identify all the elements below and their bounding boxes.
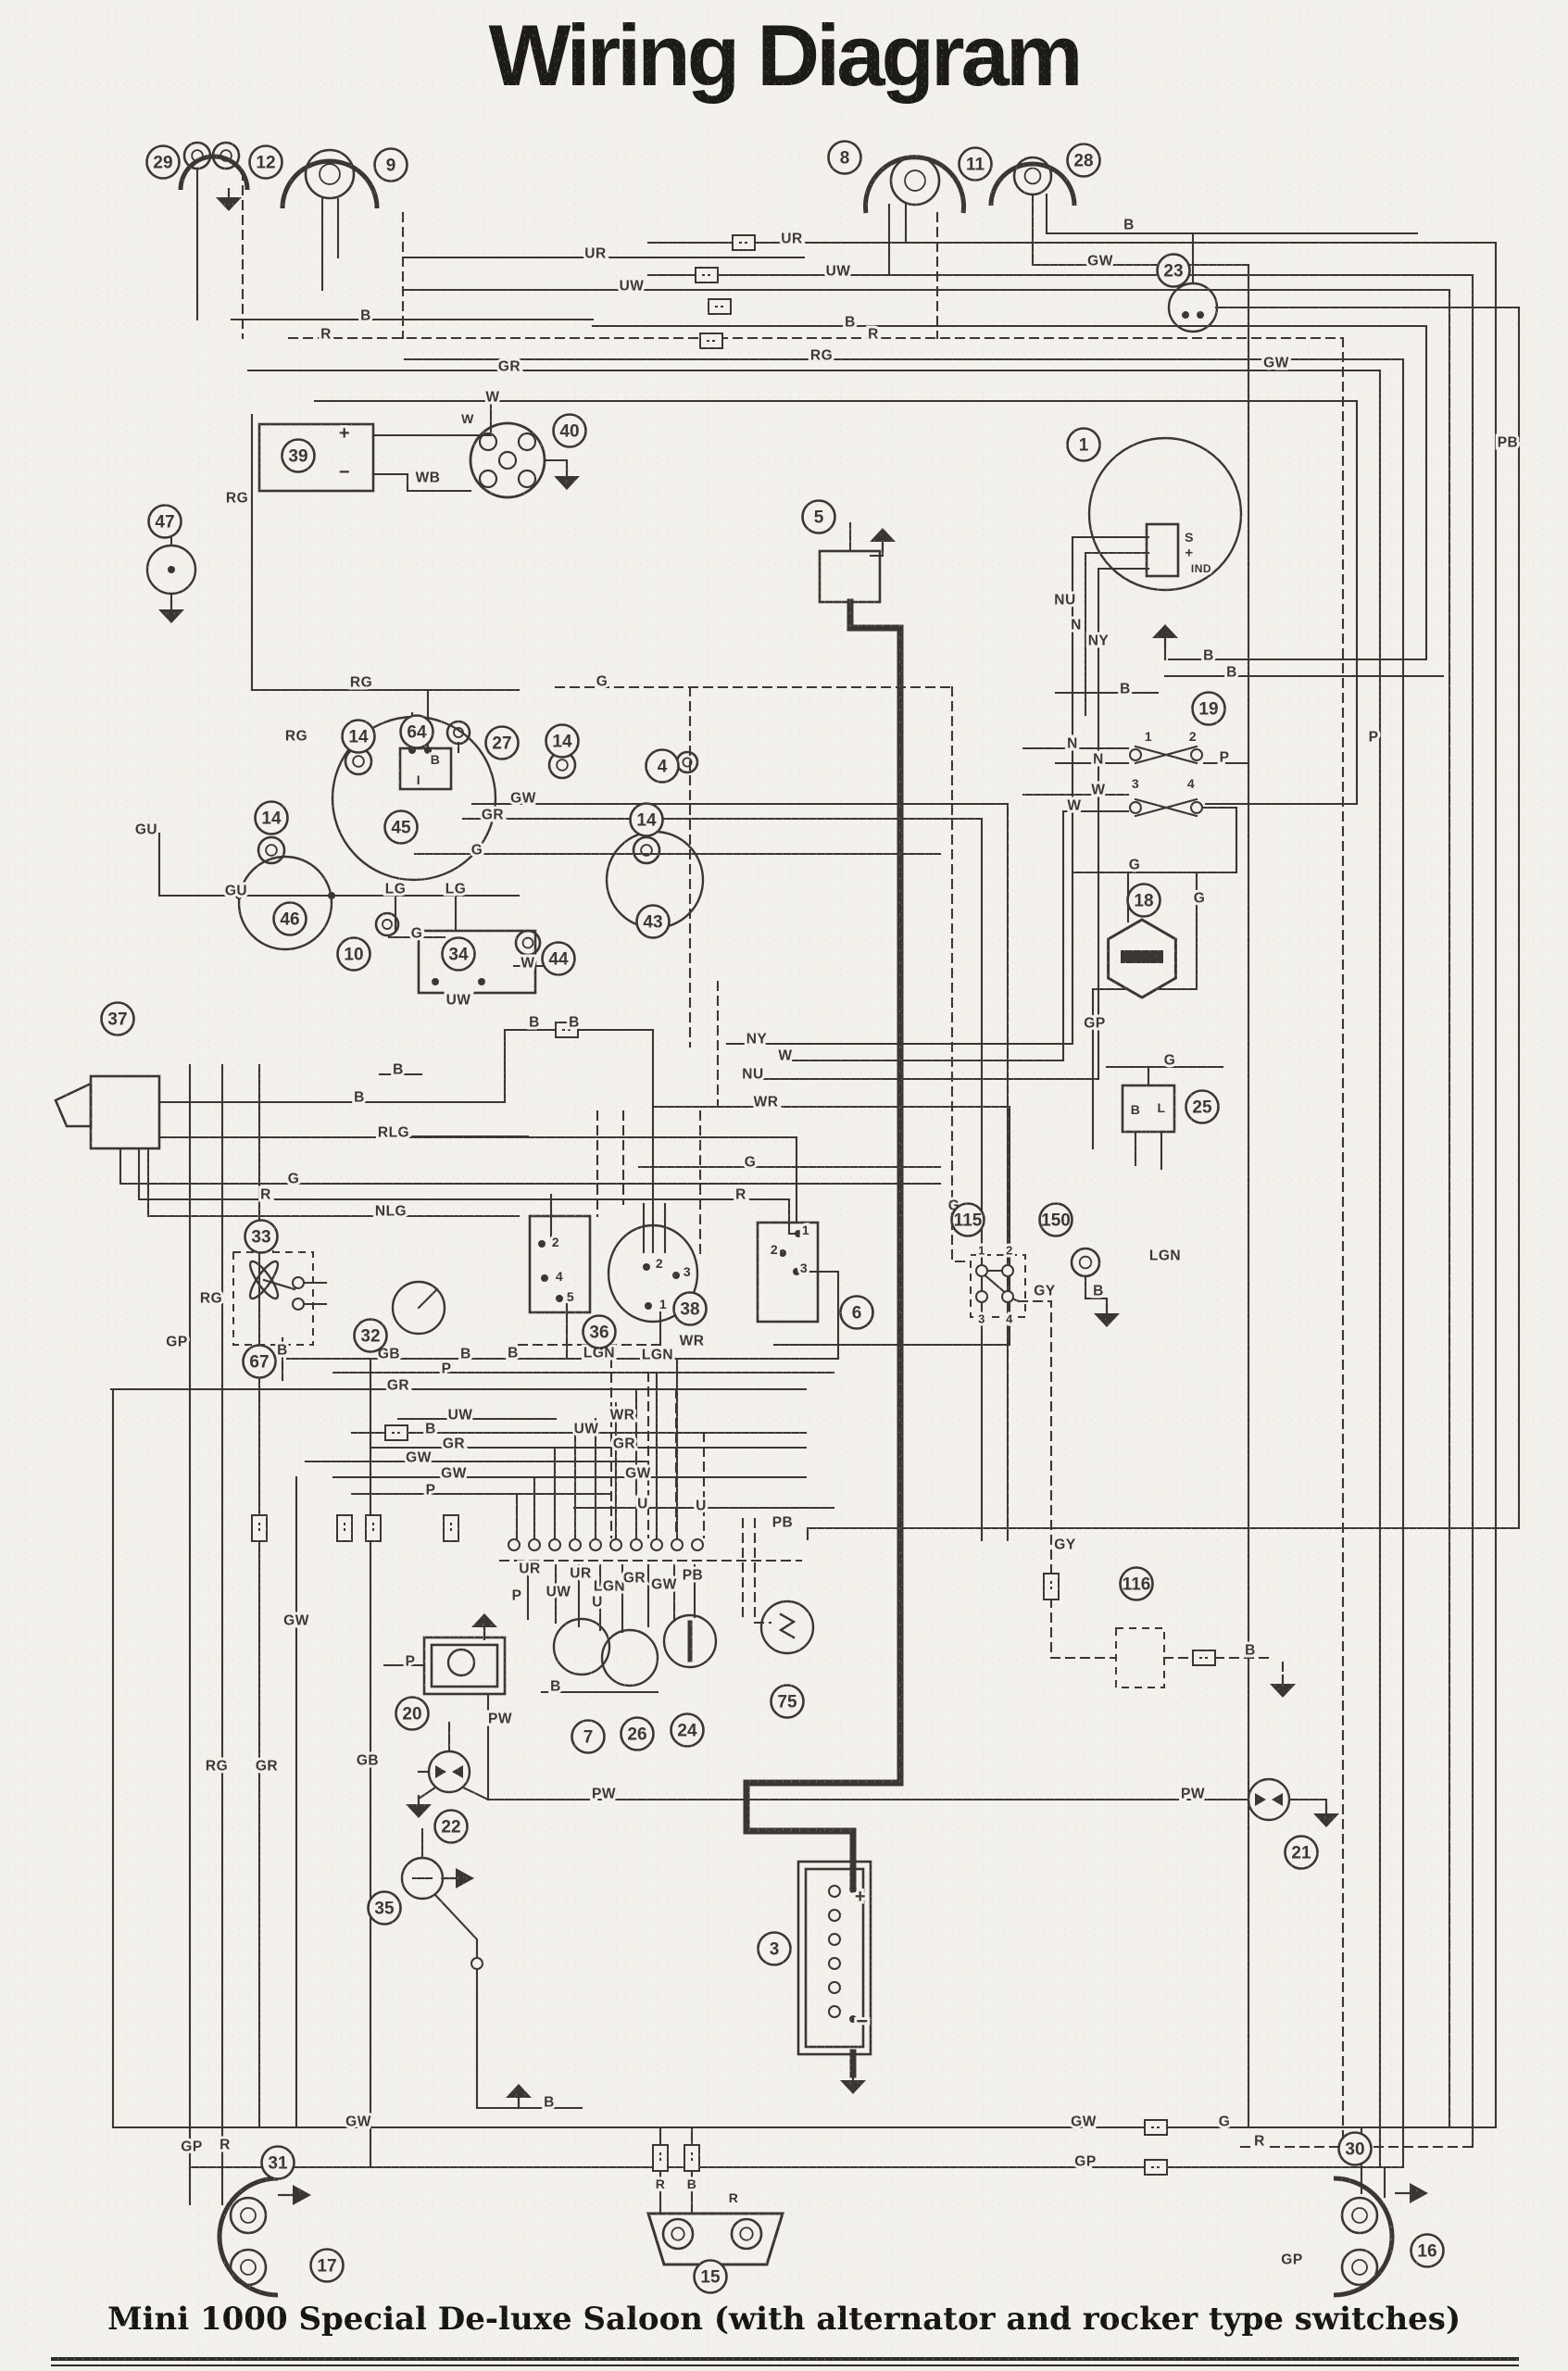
- terminal: [570, 1539, 581, 1550]
- wire-label: W: [1067, 798, 1081, 814]
- wire-label: P: [1369, 730, 1379, 746]
- connector: [700, 333, 722, 348]
- wire: [1085, 1298, 1107, 1308]
- terminal: [631, 1539, 642, 1550]
- wire: [1289, 1800, 1326, 1808]
- wire-label: R: [220, 2138, 231, 2153]
- wire-label: +: [339, 423, 350, 444]
- callout-number-34: 34: [448, 946, 469, 965]
- terminal-dot: [432, 978, 439, 985]
- bulb: [732, 2219, 761, 2249]
- wire-label: G: [745, 1155, 757, 1171]
- wire-label: B: [1203, 648, 1214, 664]
- arrow-icon: [456, 1868, 474, 1888]
- component-box: [91, 1076, 159, 1148]
- callout-number-28: 28: [1073, 152, 1093, 171]
- bulb-filament: [241, 2208, 256, 2223]
- wire: [148, 1148, 519, 1216]
- bulb: [663, 2219, 693, 2249]
- terminal-dot: [672, 1272, 680, 1279]
- bulb-filament: [1080, 1257, 1092, 1269]
- wire-label: N: [1067, 736, 1078, 752]
- terminal: [293, 1277, 304, 1288]
- wire-label: LG: [385, 882, 407, 897]
- callout-number-40: 40: [559, 422, 579, 442]
- terminal-dot: [478, 978, 485, 985]
- bulb: [891, 157, 939, 205]
- bulb-filament: [557, 759, 568, 771]
- terminal-dot: [541, 1274, 548, 1282]
- callout-number-24: 24: [677, 1722, 697, 1741]
- terminal: [471, 1958, 483, 1969]
- wire-label: B: [687, 2177, 697, 2191]
- bulb: [1342, 2198, 1377, 2233]
- bulb-filament: [241, 2260, 256, 2275]
- bottom-border-line: [51, 2365, 1519, 2366]
- callout-number-67: 67: [249, 1353, 269, 1373]
- wire-label: NU: [1054, 593, 1075, 608]
- component-box: [820, 551, 880, 602]
- wire-label: B: [529, 1015, 540, 1031]
- wire-label: S: [1185, 530, 1194, 545]
- wire-label: R: [1254, 2134, 1265, 2150]
- terminal-dot: [1197, 311, 1204, 319]
- component-box: [259, 424, 373, 491]
- callout-number-44: 44: [548, 950, 569, 970]
- wire-label: P: [426, 1483, 436, 1499]
- wire-label: RG: [810, 348, 833, 364]
- terminal: [976, 1265, 987, 1276]
- wire-label: GW: [283, 1613, 309, 1629]
- wire-label: UW: [446, 993, 471, 1009]
- wire-label: B: [1120, 682, 1131, 697]
- wire-label: B: [431, 752, 441, 767]
- wire-label: +: [855, 1887, 866, 1907]
- wire-label: B: [569, 1015, 580, 1031]
- callout-number-75: 75: [777, 1693, 797, 1712]
- wire-label: RG: [206, 1759, 228, 1775]
- bulb: [447, 721, 470, 744]
- callout-number-3: 3: [770, 1940, 780, 1960]
- terminal: [549, 1539, 560, 1550]
- wire: [435, 1895, 582, 2108]
- wire-label: N: [1071, 618, 1082, 634]
- wire-label: L: [1157, 1100, 1165, 1115]
- callout-number-10: 10: [344, 946, 363, 965]
- component-body: [761, 1601, 813, 1653]
- wire-label: LGN: [642, 1348, 673, 1363]
- wire: [785, 811, 1128, 1060]
- wire: [419, 1289, 437, 1308]
- callout-number-14: 14: [348, 728, 369, 747]
- wire-label: 4: [1187, 776, 1195, 791]
- wire-label: UW: [620, 279, 645, 295]
- component-body: [429, 1751, 470, 1792]
- wire-label: −: [339, 462, 350, 483]
- bulb-filament: [671, 2227, 684, 2239]
- callout-number-22: 22: [441, 1818, 460, 1838]
- wire-label: B: [1226, 665, 1237, 681]
- wire-label: B: [393, 1062, 404, 1078]
- bulb: [677, 752, 697, 772]
- callout-number-38: 38: [680, 1300, 699, 1320]
- distributor-terminal: [480, 470, 496, 487]
- wire-label: 1: [659, 1297, 667, 1311]
- wiring-diagram-canvas: URURUWUWBBBRRGRRGWGWGWPBWBW+−S+INDNUNNYB…: [0, 0, 1568, 2371]
- wire-dashed: [952, 687, 971, 1261]
- wire-label: LGN: [1149, 1248, 1181, 1264]
- callout-number-116: 116: [1123, 1575, 1151, 1595]
- ground-icon: [840, 2080, 866, 2094]
- wire-label: UR: [570, 1566, 591, 1582]
- wire-label: R: [656, 2177, 666, 2191]
- wire-label: UW: [574, 1422, 599, 1437]
- callout-number-20: 20: [402, 1705, 421, 1725]
- wire-label: U: [696, 1499, 707, 1514]
- component-body: [554, 1619, 609, 1675]
- connector: [1145, 2160, 1167, 2175]
- wire-label: GW: [441, 1466, 467, 1482]
- ignition-switch-key: [56, 1084, 91, 1126]
- wire: [1047, 194, 1417, 233]
- terminal-dot: [168, 566, 175, 573]
- earth-icon: [471, 1613, 497, 1627]
- wire-label: I: [417, 772, 420, 787]
- bulb-filament: [266, 845, 277, 856]
- wire-label: WR: [680, 1334, 705, 1349]
- ground-icon: [1313, 1813, 1339, 1827]
- wire-label: G: [471, 843, 483, 859]
- callout-number-19: 19: [1198, 700, 1218, 720]
- wire-label: W: [1091, 783, 1105, 798]
- wire-label: B: [460, 1347, 471, 1362]
- callout-number-26: 26: [627, 1725, 646, 1745]
- callout-number-36: 36: [589, 1323, 608, 1343]
- wire-label: R: [320, 327, 332, 343]
- connector: [696, 268, 718, 282]
- callout-number-27: 27: [492, 734, 511, 754]
- earth-icon: [1152, 624, 1178, 638]
- terminal: [651, 1539, 662, 1550]
- wire-dashed: [1051, 1599, 1116, 1658]
- callout-number-16: 16: [1417, 2242, 1436, 2262]
- wire-label: GR: [443, 1436, 465, 1452]
- wire-label: GW: [1087, 254, 1113, 270]
- distributor-terminal: [519, 470, 535, 487]
- terminal: [590, 1539, 601, 1550]
- callout-number-14: 14: [261, 809, 282, 829]
- terminal-dot: [643, 1263, 650, 1271]
- wire-label: 2: [656, 1256, 663, 1271]
- bulb-filament: [1352, 2208, 1367, 2223]
- wire-label: B: [1123, 218, 1135, 233]
- wire-label: NU: [742, 1067, 763, 1083]
- wire-label: 1: [1145, 729, 1152, 744]
- spark-gap-icon: [781, 1614, 794, 1637]
- wire-label: GU: [135, 822, 157, 838]
- wire-label: GW: [1263, 356, 1289, 371]
- bulb: [1342, 2250, 1377, 2285]
- wire-label: R: [735, 1187, 746, 1203]
- wire-label: GW: [510, 791, 536, 807]
- terminal-dot: [779, 1249, 786, 1257]
- callout-number-33: 33: [251, 1228, 270, 1248]
- bulb: [306, 150, 354, 198]
- bulb-filament: [1025, 169, 1041, 184]
- callout-number-46: 46: [280, 910, 299, 930]
- wire-label: UW: [546, 1585, 571, 1600]
- wire-label: GB: [357, 1753, 379, 1769]
- component-body: [1248, 1779, 1289, 1820]
- wire-label: U: [637, 1497, 648, 1512]
- wire-label: P: [406, 1654, 416, 1670]
- wire-label: +: [1185, 546, 1193, 561]
- wire-label: B: [1093, 1284, 1104, 1299]
- wire-label: B: [360, 308, 371, 324]
- connector: [1145, 2120, 1167, 2135]
- wire-label: GW: [651, 1577, 677, 1593]
- bulb-filament: [740, 2227, 752, 2239]
- wire-label: GP: [1074, 2154, 1096, 2170]
- wire-label: 3: [1132, 776, 1139, 791]
- arrow-icon: [1410, 2183, 1428, 2203]
- component-box: [432, 1645, 497, 1687]
- wire-label: 4: [1006, 1312, 1013, 1326]
- wire-label: PW: [488, 1712, 512, 1727]
- terminal: [1002, 1265, 1013, 1276]
- wire-label: R: [729, 2190, 739, 2205]
- wire: [1033, 194, 1248, 265]
- wire-label: WB: [416, 470, 441, 486]
- ground-icon: [406, 1804, 432, 1818]
- wire-label: NY: [746, 1032, 768, 1048]
- component-box: [1147, 524, 1178, 576]
- callout-number-150: 150: [1041, 1211, 1071, 1231]
- wire-label: GR: [613, 1436, 635, 1452]
- wire-label: RG: [285, 729, 307, 745]
- wire-label: B: [354, 1090, 365, 1106]
- wire-label: GP: [1084, 1016, 1105, 1032]
- inward-arrow-icon: [452, 1765, 463, 1778]
- callout-number-37: 37: [107, 1010, 127, 1030]
- wire-label: B: [277, 1343, 288, 1359]
- wire-label: B: [544, 2095, 555, 2111]
- ground-icon: [554, 476, 580, 490]
- wire-label: U: [592, 1595, 603, 1611]
- wire-label: GW: [1071, 2114, 1097, 2130]
- wire-label: 3: [684, 1264, 691, 1279]
- callout-number-14: 14: [636, 811, 657, 831]
- bulb: [231, 2250, 266, 2285]
- wire-label: B: [550, 1679, 561, 1695]
- wire-label: GP: [181, 2139, 202, 2155]
- component-body: [448, 1650, 474, 1675]
- ground-icon: [1270, 1684, 1296, 1698]
- diagram-caption: Mini 1000 Special De-luxe Saloon (with a…: [0, 2301, 1568, 2338]
- terminal: [829, 1934, 840, 1945]
- terminal: [508, 1539, 520, 1550]
- callout-number-7: 7: [583, 1728, 594, 1748]
- wire-label: PB: [772, 1515, 794, 1531]
- bulb-filament: [523, 938, 533, 948]
- wire: [1206, 401, 1357, 804]
- wire-label: GR: [387, 1378, 409, 1394]
- callout-number-6: 6: [852, 1304, 862, 1323]
- wire-label: G: [1194, 891, 1206, 907]
- wire: [139, 1148, 789, 1199]
- connector: [709, 299, 731, 314]
- bottom-border-line: [51, 2357, 1519, 2361]
- wire-label: W: [521, 956, 534, 972]
- terminal: [829, 1982, 840, 1993]
- wire-label: GR: [482, 808, 504, 823]
- wire: [545, 460, 567, 470]
- callout-number-39: 39: [288, 447, 307, 467]
- bulb: [1072, 1248, 1099, 1276]
- wire-label: IND: [1191, 562, 1211, 575]
- terminal: [829, 1958, 840, 1969]
- ground-icon: [1094, 1313, 1120, 1327]
- callout-number-45: 45: [391, 819, 411, 838]
- wire-label: GW: [345, 2114, 371, 2130]
- bulb-filament: [353, 756, 364, 767]
- terminal: [692, 1539, 703, 1550]
- ground-icon: [216, 197, 242, 211]
- wire-label: G: [288, 1172, 300, 1187]
- wire: [159, 1030, 653, 1102]
- terminal-dot: [793, 1268, 800, 1275]
- ground-icon: [158, 609, 184, 623]
- callout-number-14: 14: [552, 733, 572, 752]
- wire-label: G: [1164, 1053, 1176, 1069]
- wire-label: GU: [225, 884, 247, 899]
- wire-dashed: [1019, 1301, 1051, 1574]
- inward-arrow-icon: [1272, 1793, 1283, 1806]
- callout-number-115: 115: [954, 1211, 983, 1231]
- wire: [419, 1788, 435, 1799]
- wire-label: GW: [625, 1466, 651, 1482]
- wire-label: PB: [683, 1568, 704, 1584]
- terminal: [976, 1291, 987, 1302]
- terminal: [293, 1298, 304, 1310]
- wire-label: 2: [1006, 1244, 1013, 1258]
- wire-label: UR: [781, 232, 802, 247]
- wire-label: RG: [350, 675, 372, 691]
- wire-label: GY: [1034, 1284, 1056, 1299]
- inward-arrow-icon: [435, 1765, 446, 1778]
- inward-arrow-icon: [1255, 1793, 1266, 1806]
- wire-label: G: [1129, 858, 1141, 873]
- bulb-filament: [905, 170, 925, 191]
- wire-label: NY: [1088, 634, 1110, 649]
- callout-number-1: 1: [1079, 436, 1089, 456]
- callout-number-15: 15: [700, 2268, 721, 2288]
- wire-label: GR: [256, 1759, 278, 1775]
- terminal-dot: [795, 1230, 802, 1237]
- callout-number-12: 12: [256, 154, 275, 173]
- wire-label: RG: [226, 491, 248, 507]
- wire-label: GW: [406, 1450, 432, 1466]
- wire-label: UW: [826, 264, 851, 280]
- component-box-dashed: [1116, 1628, 1164, 1687]
- wire-label: GR: [498, 359, 521, 375]
- wire-label: UR: [519, 1562, 540, 1577]
- wire-label: B: [845, 315, 856, 331]
- lamp-shell: [1334, 2178, 1392, 2295]
- wire-label: GP: [1281, 2252, 1302, 2268]
- wire-label: NLG: [375, 1204, 407, 1220]
- terminal: [1002, 1291, 1013, 1302]
- wire-label: 4: [556, 1269, 563, 1284]
- distributor-terminal: [499, 452, 516, 469]
- wire-label: WR: [610, 1408, 635, 1424]
- connector: [733, 235, 755, 250]
- wire-label: P: [442, 1361, 452, 1377]
- callout-number-4: 4: [658, 758, 668, 777]
- wire-label: B: [508, 1346, 519, 1361]
- component-body: [602, 1630, 658, 1686]
- distributor-terminal: [519, 433, 535, 450]
- terminal: [610, 1539, 621, 1550]
- terminal: [1130, 749, 1141, 760]
- callout-number-17: 17: [317, 2257, 336, 2277]
- connector: [385, 1425, 408, 1440]
- wire: [1160, 872, 1197, 989]
- wire: [463, 1788, 488, 1800]
- wire-label: UR: [584, 246, 606, 262]
- terminal-dot: [538, 1240, 546, 1248]
- callout-number-9: 9: [386, 157, 396, 176]
- callout-number-11: 11: [966, 156, 985, 175]
- terminal: [671, 1539, 683, 1550]
- wire: [472, 804, 1008, 1540]
- wire-label: PW: [1181, 1787, 1205, 1802]
- terminal-dot: [1182, 311, 1189, 319]
- wire-label: RLG: [378, 1125, 409, 1141]
- terminal-dot: [556, 1295, 563, 1302]
- wire-label: W: [461, 411, 474, 426]
- terminal: [1191, 749, 1202, 760]
- wire-label: B: [425, 1422, 436, 1437]
- wire: [808, 307, 1519, 1539]
- wiring-diagram-page: Wiring Diagram URURUWUWBBBRRGRRGWGWGWPBW…: [0, 0, 1568, 2371]
- wire-label: 3: [800, 1261, 808, 1275]
- callout-number-43: 43: [643, 913, 662, 933]
- terminal: [829, 1910, 840, 1921]
- wire-label: PW: [592, 1787, 616, 1802]
- callout-number-31: 31: [268, 2154, 288, 2174]
- connector: [1193, 1650, 1215, 1665]
- terminal: [1191, 802, 1202, 813]
- wire-label: RG: [200, 1291, 222, 1307]
- earth-icon: [870, 528, 896, 542]
- wire-label: B: [1245, 1643, 1256, 1659]
- wire-label: LGN: [594, 1579, 625, 1595]
- component-body: [1089, 438, 1241, 590]
- wire-label: G: [1219, 2114, 1231, 2130]
- wire-label: PB: [1498, 435, 1519, 451]
- bulb: [633, 837, 659, 863]
- component-box: [400, 748, 451, 789]
- callout-number-64: 64: [407, 723, 427, 743]
- callout-number-25: 25: [1192, 1098, 1212, 1118]
- wire-label: B: [1131, 1102, 1141, 1117]
- wire-label: 2: [771, 1242, 778, 1257]
- bulb: [231, 2198, 266, 2233]
- wire-label: 2: [552, 1235, 559, 1249]
- callout-number-47: 47: [155, 513, 174, 533]
- wire-label: GP: [166, 1335, 187, 1350]
